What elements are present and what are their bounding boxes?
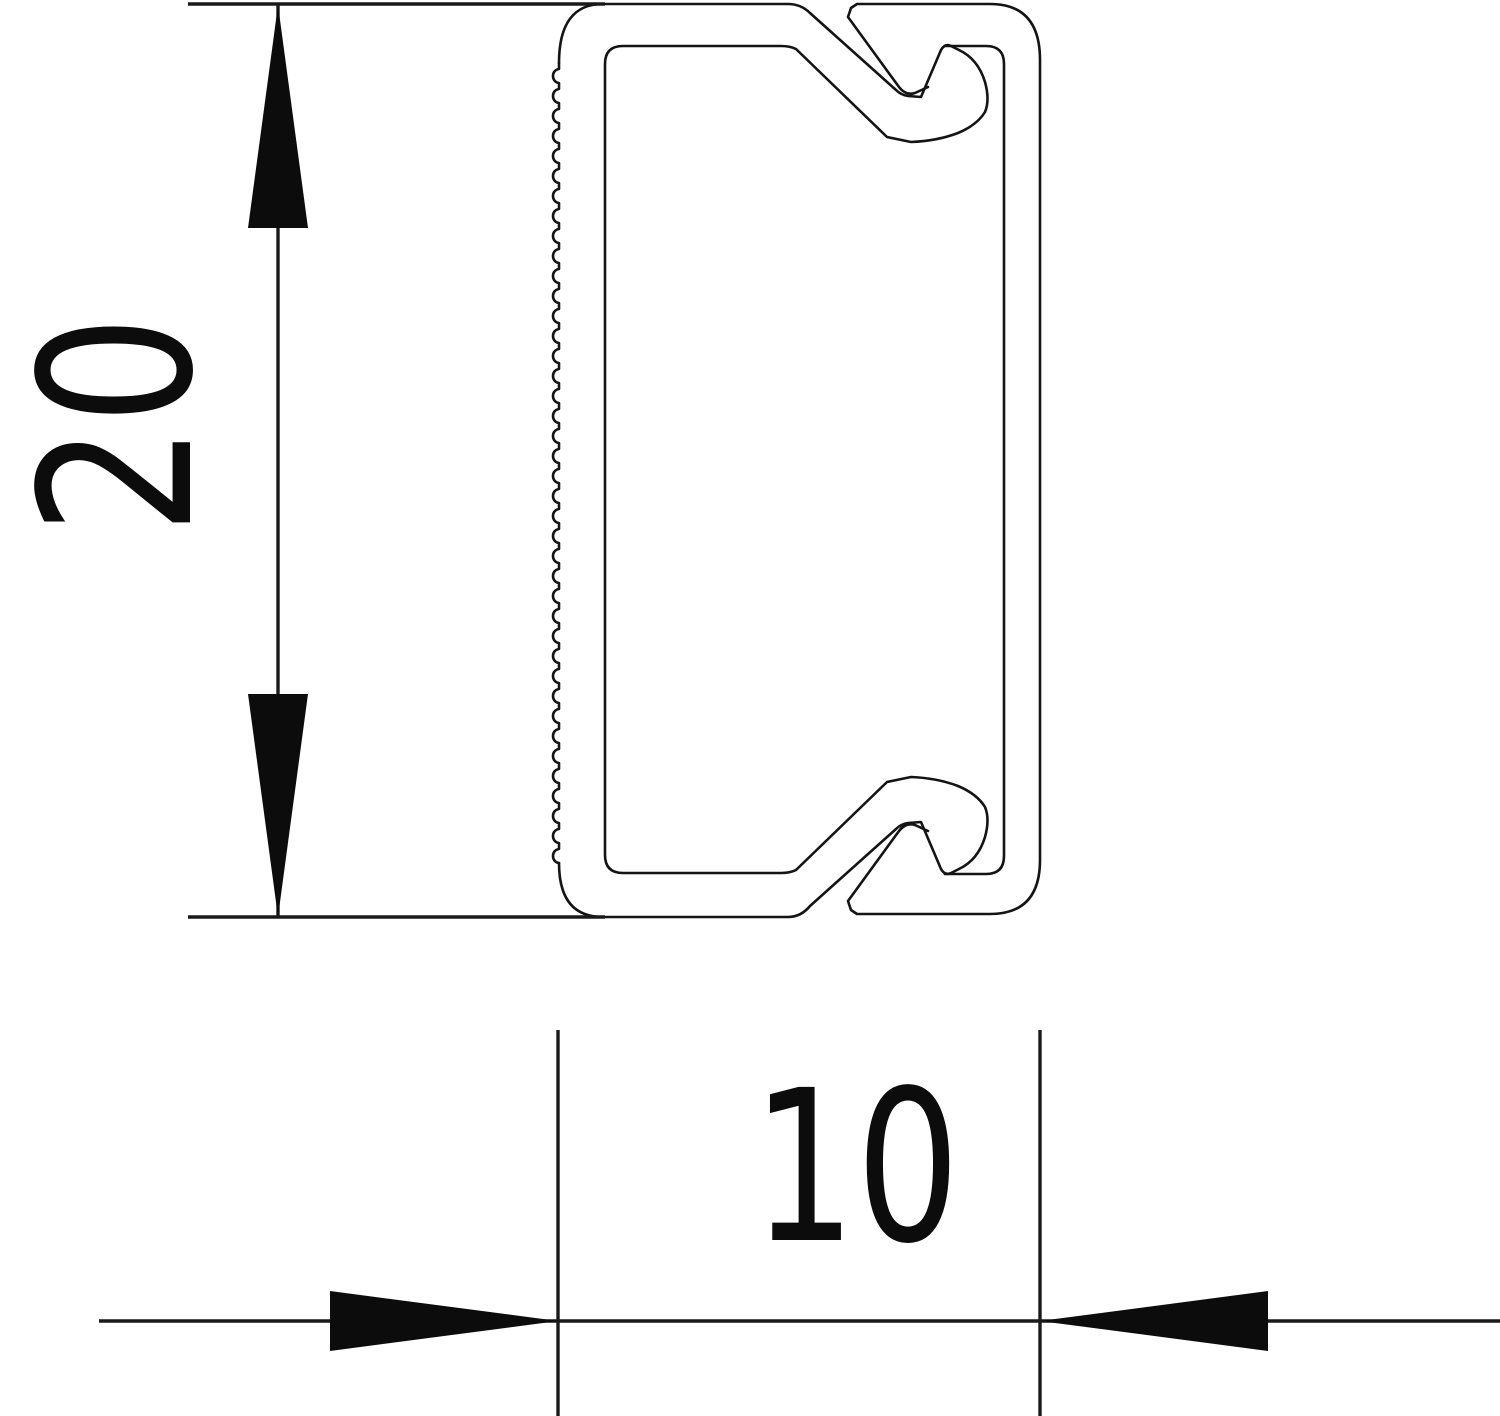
duct-base-outline [559,4,988,917]
duct-profile [553,4,1040,917]
arrow-right-icon [330,1291,558,1351]
width-dimension-value: 10 [752,1045,960,1290]
height-dimension: 20 [0,4,605,917]
arrow-down-icon [248,694,308,917]
duct-serrated-edge [553,63,559,863]
width-dimension: 10 [99,1030,1500,1416]
drawing-canvas: 20 10 [0,0,1500,1416]
arrow-up-icon [248,5,308,228]
duct-cover-inner-outline [945,46,1004,874]
arrow-left-icon [1040,1291,1268,1351]
trunking-cross-section-drawing: 20 10 [0,0,1500,1416]
duct-cover-outline [848,4,1040,914]
height-dimension-value: 20 [0,315,240,535]
